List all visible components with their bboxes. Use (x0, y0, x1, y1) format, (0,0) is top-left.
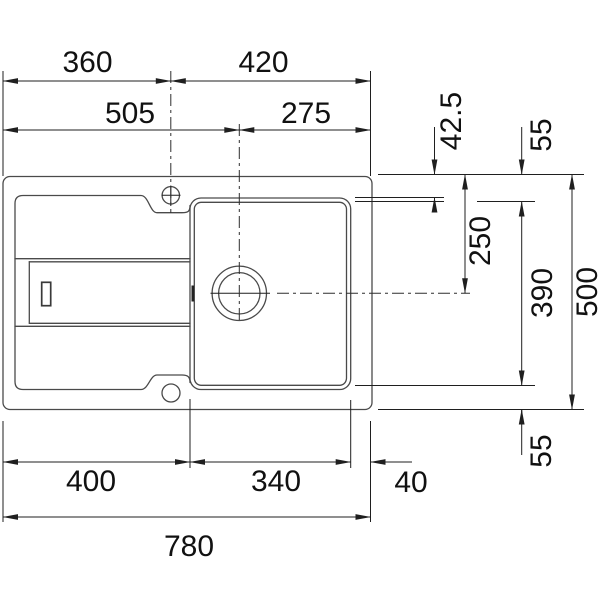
label-340: 340 (251, 465, 301, 498)
overflow-slot (42, 282, 51, 305)
label-505: 505 (105, 97, 155, 130)
label-400: 400 (66, 465, 116, 498)
label-42-5: 42.5 (435, 92, 468, 150)
technical-drawing-canvas: 360 420 505 275 42.5 55 250 390 500 55 4… (0, 0, 600, 600)
label-275: 275 (281, 97, 331, 130)
bottom-hole (162, 384, 180, 402)
sink-dimension-drawing: 360 420 505 275 42.5 55 250 390 500 55 4… (0, 0, 600, 600)
label-780: 780 (164, 530, 214, 563)
label-55-top: 55 (525, 118, 558, 151)
label-420: 420 (238, 46, 288, 79)
label-360: 360 (62, 46, 112, 79)
label-250: 250 (464, 216, 497, 266)
label-500: 500 (571, 267, 600, 317)
label-390: 390 (526, 268, 559, 318)
label-55-bottom: 55 (525, 434, 558, 467)
label-40: 40 (394, 466, 427, 499)
dimensions-bottom (3, 399, 412, 522)
dimension-labels: 360 420 505 275 42.5 55 250 390 500 55 4… (62, 46, 600, 563)
